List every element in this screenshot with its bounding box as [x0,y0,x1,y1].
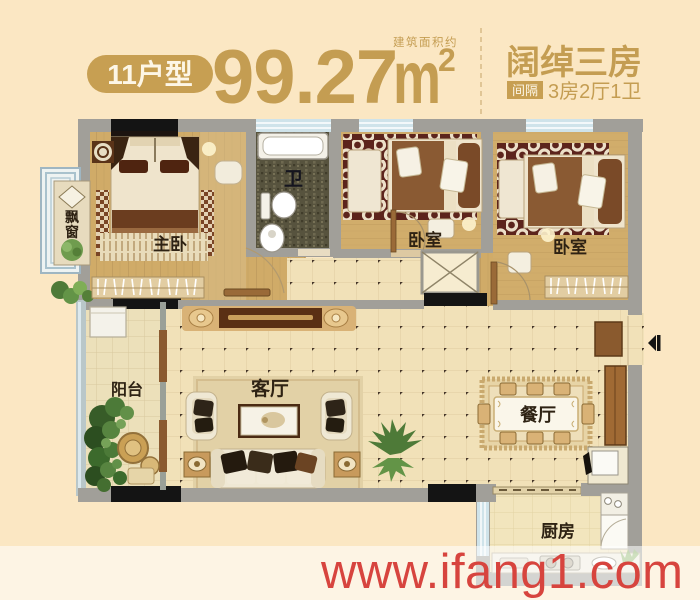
svg-text:www.ifang1.com: www.ifang1.com [320,545,683,599]
svg-text:阳台: 阳台 [111,380,143,399]
svg-text:厨房: 厨房 [541,521,575,541]
svg-text:间隔: 间隔 [512,83,538,98]
svg-text:阔绰三房: 阔绰三房 [506,44,642,82]
svg-text:99.27: 99.27 [212,35,397,120]
svg-text:卫: 卫 [284,169,303,190]
svg-text:飘: 飘 [65,209,79,225]
svg-text:客厅: 客厅 [251,377,289,400]
svg-text:餐厅: 餐厅 [519,404,556,425]
svg-text:建筑面积约: 建筑面积约 [393,35,458,49]
svg-text:窗: 窗 [65,224,79,240]
svg-text:3房2厅1卫: 3房2厅1卫 [548,80,641,103]
svg-text:卧室: 卧室 [553,237,587,257]
svg-text:11户型: 11户型 [107,58,193,90]
svg-text:主卧: 主卧 [153,234,187,254]
